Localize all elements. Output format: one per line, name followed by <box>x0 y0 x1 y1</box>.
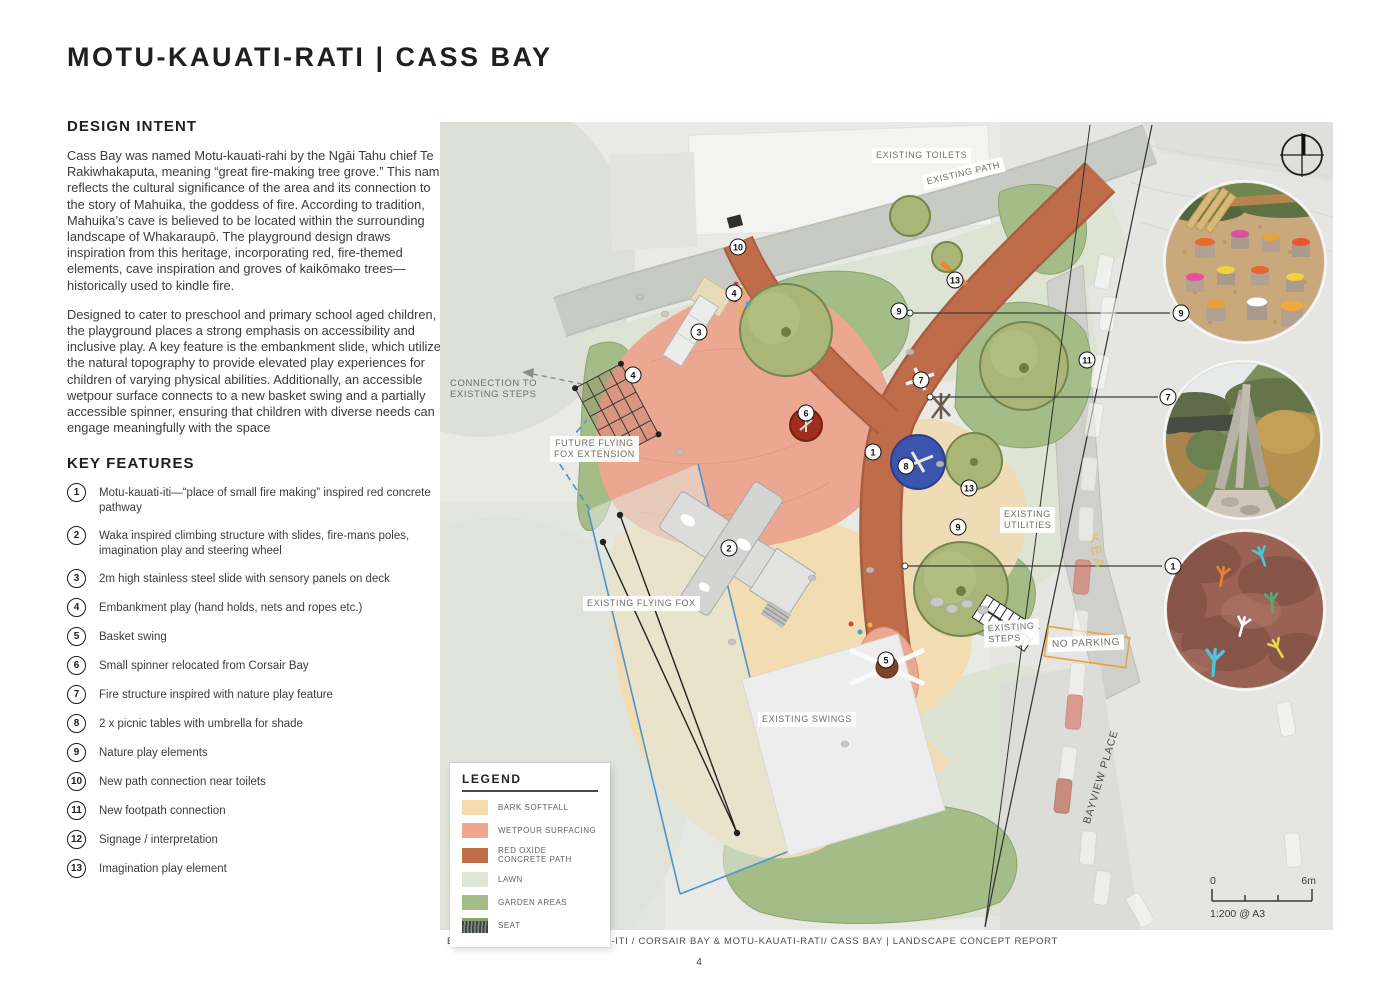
feature-number: 4 <box>67 598 86 617</box>
label-existing-toilets: EXISTING TOILETS <box>872 148 971 163</box>
plan-marker: 7 <box>913 372 930 389</box>
label-no-parking: NO PARKING <box>1048 635 1125 653</box>
photo-inset-wetpour-birdprints <box>1166 531 1324 689</box>
photo-marker: 9 <box>1173 305 1190 322</box>
feature-number: 6 <box>67 656 86 675</box>
legend-swatch-garden <box>462 895 488 910</box>
label-existing-steps: EXISTING STEPS <box>983 619 1039 648</box>
photo-marker: 7 <box>1160 389 1177 406</box>
feature-text: 2m high stainless steel slide with senso… <box>99 571 390 587</box>
label-existing-utilities: EXISTING UTILITIES <box>1000 507 1055 533</box>
feature-text: New footpath connection <box>99 803 226 819</box>
feature-item: 4Embankment play (hand holds, nets and r… <box>67 600 462 617</box>
feature-item: 13Imagination play element <box>67 861 462 878</box>
feature-number: 11 <box>67 801 86 820</box>
legend-swatch-bark <box>462 800 488 815</box>
legend-panel: LEGEND BARK SOFTFALL WETPOUR SURFACING R… <box>450 763 610 947</box>
key-features-section: KEY FEATURES 1Motu-kauati-iti—“place of … <box>67 455 462 890</box>
feature-number: 3 <box>67 569 86 588</box>
feature-text: Embankment play (hand holds, nets and ro… <box>99 600 362 616</box>
feature-item: 9Nature play elements <box>67 745 462 762</box>
feature-text: 2 x picnic tables with umbrella for shad… <box>99 716 303 732</box>
key-features-heading: KEY FEATURES <box>67 455 462 472</box>
plan-marker: 8 <box>898 458 915 475</box>
plan-marker: 4 <box>726 285 743 302</box>
legend-swatch-seat <box>462 918 488 933</box>
legend-item: BARK SOFTFALL <box>462 800 598 815</box>
plan-marker: 5 <box>878 652 895 669</box>
scale-end: 6m <box>1301 875 1316 887</box>
feature-number: 9 <box>67 743 86 762</box>
legend-swatch-wetpour <box>462 823 488 838</box>
feature-number: 2 <box>67 526 86 545</box>
feature-text: Small spinner relocated from Corsair Bay <box>99 658 309 674</box>
feature-text: Imagination play element <box>99 861 227 877</box>
design-intent-heading: DESIGN INTENT <box>67 118 449 135</box>
feature-number: 1 <box>67 483 86 502</box>
photo-inset-fire-structure <box>1165 362 1321 518</box>
feature-number: 13 <box>67 859 86 878</box>
feature-number: 7 <box>67 685 86 704</box>
site-plan: KEA <box>440 122 1333 930</box>
legend-item: RED OXIDE CONCRETE PATH <box>462 846 598 864</box>
plan-marker: 13 <box>947 272 964 289</box>
plan-marker: 11 <box>1079 352 1096 369</box>
feature-item: 5Basket swing <box>67 629 462 646</box>
feature-text: Basket swing <box>99 629 167 645</box>
legend-item: GARDEN AREAS <box>462 895 598 910</box>
label-existing-flying-fox: EXISTING FLYING FOX <box>583 596 700 611</box>
feature-text: New path connection near toilets <box>99 774 266 790</box>
feature-text: Signage / interpretation <box>99 832 218 848</box>
scale-ratio: 1:200 @ A3 <box>1210 908 1316 920</box>
page-title: MOTU-KAUATI-RATI | CASS BAY <box>67 42 553 73</box>
feature-item: 6Small spinner relocated from Corsair Ba… <box>67 658 462 675</box>
scale-bar: 0 6m 1:200 @ A3 <box>1210 875 1316 920</box>
feature-item: 82 x picnic tables with umbrella for sha… <box>67 716 462 733</box>
feature-item: 12Signage / interpretation <box>67 832 462 849</box>
legend-swatch-red-oxide <box>462 848 488 863</box>
plan-marker: 6 <box>798 405 815 422</box>
legend-title: LEGEND <box>462 772 598 792</box>
design-intent-section: DESIGN INTENT Cass Bay was named Motu-ka… <box>67 118 449 449</box>
scale-bar-graphic <box>1210 888 1314 902</box>
north-arrow-icon <box>1278 131 1326 179</box>
photo-inset-nature-play <box>1165 182 1325 342</box>
report-page: MOTU-KAUATI-RATI | CASS BAY DESIGN INTEN… <box>0 0 1398 989</box>
plan-marker: 13 <box>961 480 978 497</box>
feature-item: 11New footpath connection <box>67 803 462 820</box>
legend-item: LAWN <box>462 872 598 887</box>
plan-marker: 9 <box>891 303 908 320</box>
plan-marker: 2 <box>721 540 738 557</box>
design-intent-paragraph-1: Cass Bay was named Motu-kauati-rahi by t… <box>67 148 449 294</box>
photo-marker: 1 <box>1165 558 1182 575</box>
label-existing-swings: EXISTING SWINGS <box>758 712 856 727</box>
feature-text: Fire structure inspired with nature play… <box>99 687 333 703</box>
feature-item: 32m high stainless steel slide with sens… <box>67 571 462 588</box>
legend-swatch-lawn <box>462 872 488 887</box>
label-connection-steps: CONNECTION TO EXISTING STEPS <box>450 378 537 400</box>
feature-text: Motu-kauati-iti—“place of small fire mak… <box>99 485 462 516</box>
feature-item: 10New path connection near toilets <box>67 774 462 791</box>
design-intent-paragraph-2: Designed to cater to preschool and prima… <box>67 307 449 437</box>
feature-item: 1Motu-kauati-iti—“place of small fire ma… <box>67 485 462 516</box>
feature-text: Nature play elements <box>99 745 208 761</box>
feature-item: 2Waka inspired climbing structure with s… <box>67 528 462 559</box>
plan-marker: 9 <box>950 519 967 536</box>
legend-item: SEAT <box>462 918 598 933</box>
feature-item: 7Fire structure inspired with nature pla… <box>67 687 462 704</box>
plan-marker: 1 <box>865 444 882 461</box>
plan-marker: 10 <box>730 239 747 256</box>
scale-start: 0 <box>1210 875 1216 887</box>
page-number: 4 <box>0 957 1398 968</box>
plan-marker: 3 <box>691 324 708 341</box>
legend-item: WETPOUR SURFACING <box>462 823 598 838</box>
feature-number: 10 <box>67 772 86 791</box>
label-future-flying-fox: FUTURE FLYING FOX EXTENSION <box>550 436 639 462</box>
feature-number: 12 <box>67 830 86 849</box>
feature-text: Waka inspired climbing structure with sl… <box>99 528 462 559</box>
feature-number: 5 <box>67 627 86 646</box>
plan-marker: 4 <box>625 367 642 384</box>
feature-number: 8 <box>67 714 86 733</box>
